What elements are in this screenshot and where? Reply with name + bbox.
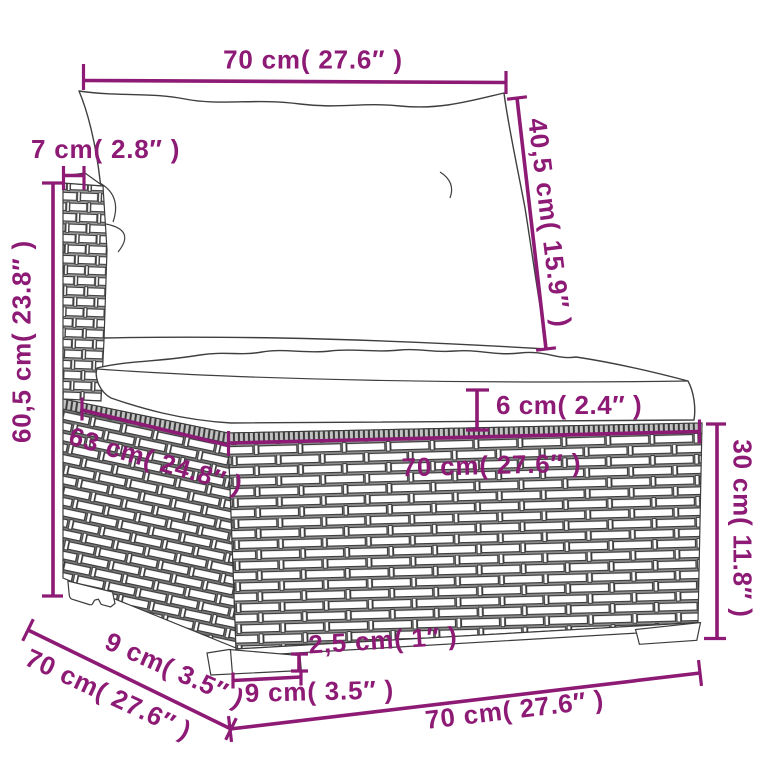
svg-text:7 cm( 2.8″ ): 7 cm( 2.8″ ) <box>31 134 180 164</box>
svg-text:9 cm( 3.5″ ): 9 cm( 3.5″ ) <box>244 674 394 708</box>
svg-text:70 cm( 27.6″ ): 70 cm( 27.6″ ) <box>223 45 403 75</box>
svg-text:60,5 cm( 23.8″ ): 60,5 cm( 23.8″ ) <box>7 240 37 443</box>
svg-text:30 cm( 11.8″ ): 30 cm( 11.8″ ) <box>728 439 758 617</box>
svg-text:70 cm( 27.6″ ): 70 cm( 27.6″ ) <box>401 448 581 483</box>
svg-text:6 cm( 2.4″ ): 6 cm( 2.4″ ) <box>496 390 642 420</box>
